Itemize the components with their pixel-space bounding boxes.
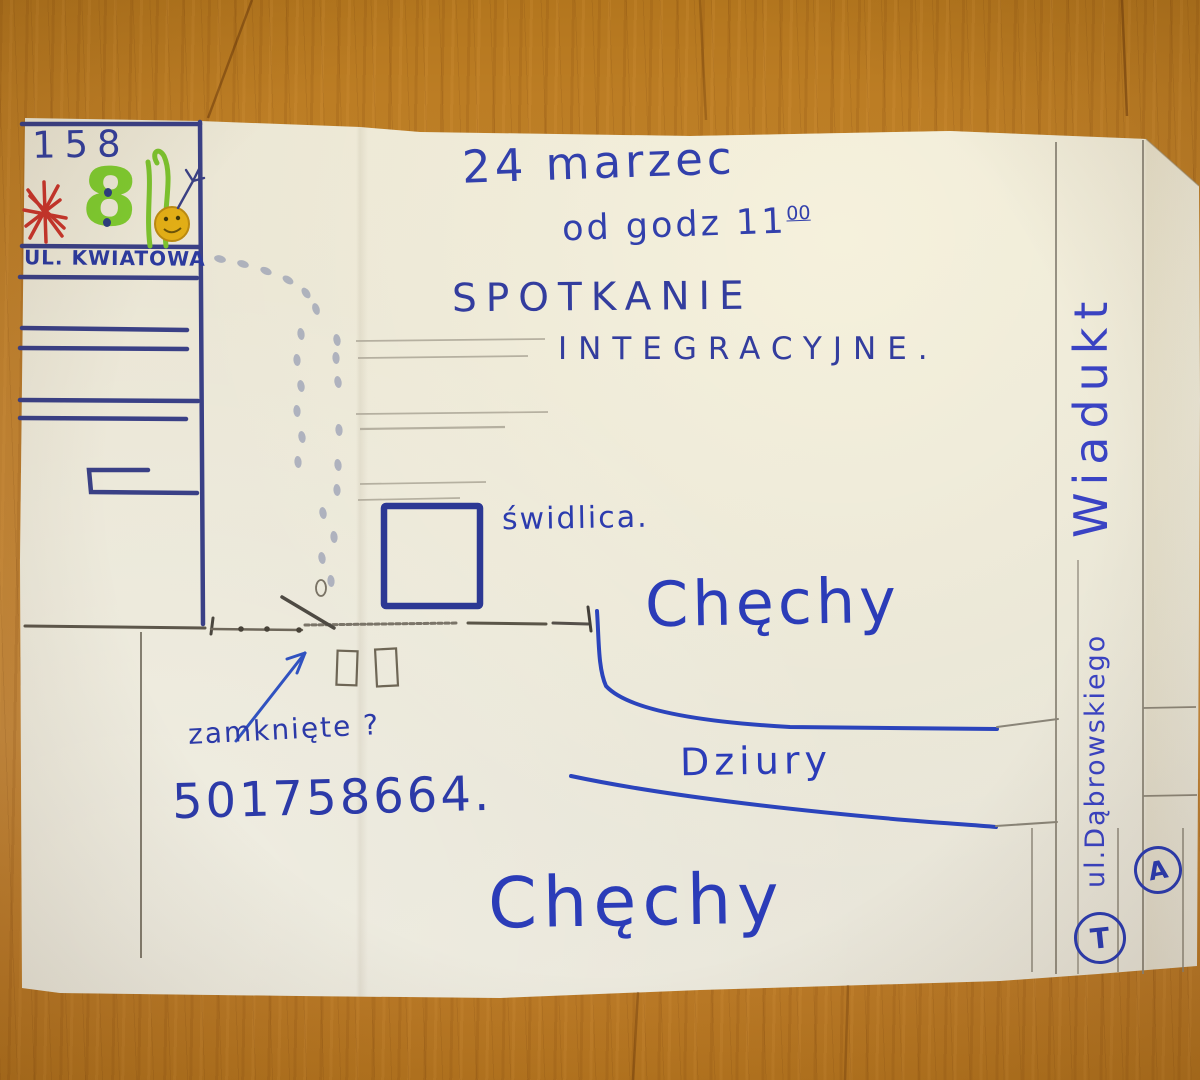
dziury-road <box>571 611 997 827</box>
event-time-text: od godz 11 <box>561 202 787 250</box>
red-scribble-icon <box>24 182 66 242</box>
pencil-sketch-lines <box>356 339 548 500</box>
event-date-label: 24 marzec <box>461 135 736 190</box>
smiley-bug-icon <box>155 165 204 241</box>
event-time-minutes: 00 <box>786 202 811 225</box>
phone-number-label: 501758664. <box>171 770 492 826</box>
stop-a-letter: A <box>1146 854 1170 886</box>
viaduct-road <box>1032 140 1197 974</box>
viaduct-label: Wiadukt <box>1068 294 1114 538</box>
event-time-label: od godz 1100 <box>561 204 811 248</box>
gate-bar <box>282 597 334 628</box>
road-condition-label: Dziury <box>680 741 833 782</box>
stop-t-letter: T <box>1089 921 1111 956</box>
footprint-trail <box>213 254 343 587</box>
event-title-line1: SPOTKANIE <box>452 277 753 319</box>
venue-building-square <box>384 506 480 606</box>
venue-label: świdlica. <box>502 503 649 536</box>
village-label-upper: Chęchy <box>644 570 900 636</box>
green-house-number-label: 8 <box>80 157 140 240</box>
street-kwiatowa-label: ul. Kwiatowa <box>24 247 206 269</box>
green-eight-dot-top <box>104 188 112 197</box>
gate-posts <box>336 648 398 686</box>
street-dabrowskiego-label: ul.Dąbrowskiego <box>1082 634 1109 888</box>
village-label-lower: Chęchy <box>487 863 785 938</box>
photo-of-hand-drawn-map: 158 8 ul. Kwiatowa 24 marzec od godz 110… <box>0 0 1200 1080</box>
dziury-road-pencil-ends <box>996 719 1058 826</box>
paper-fold-crease <box>1146 139 1199 186</box>
main-road <box>25 580 591 634</box>
event-title-line2: INTEGRACYJNE. <box>558 334 939 365</box>
green-eight-dot-bottom <box>103 218 111 227</box>
